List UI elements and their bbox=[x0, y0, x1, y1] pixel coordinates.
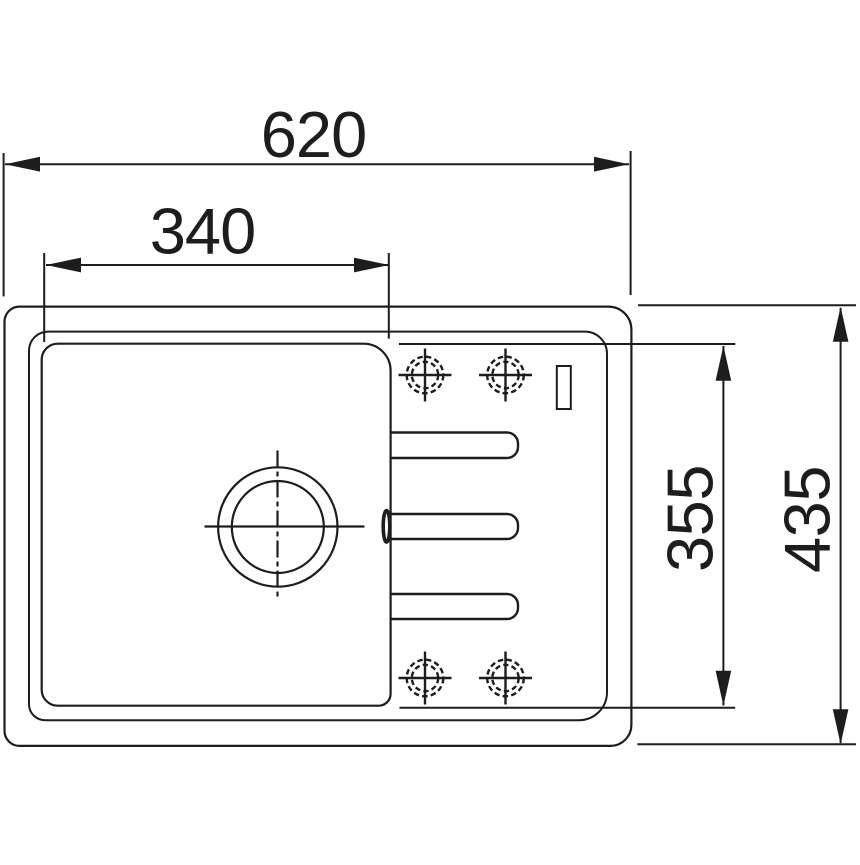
svg-text:435: 435 bbox=[771, 466, 844, 573]
svg-text:340: 340 bbox=[150, 195, 255, 268]
svg-text:620: 620 bbox=[261, 98, 366, 171]
svg-text:355: 355 bbox=[654, 465, 727, 572]
